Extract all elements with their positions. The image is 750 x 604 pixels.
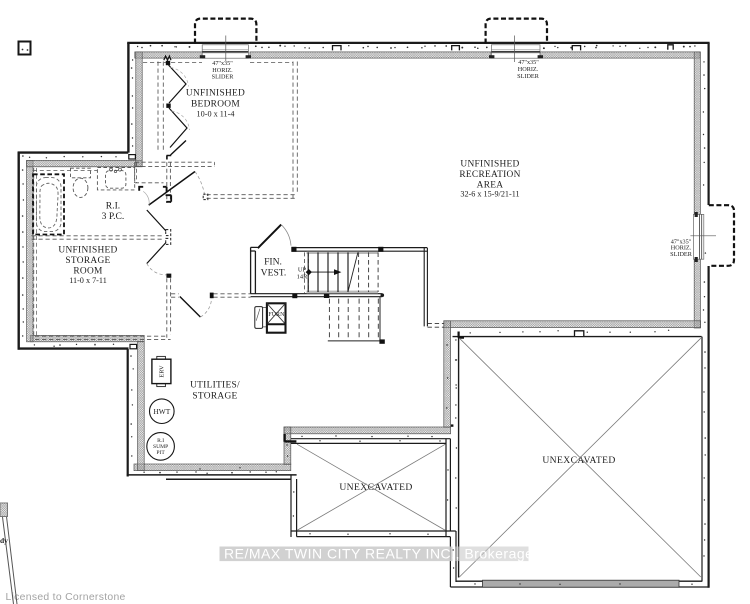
svg-text:HWT: HWT xyxy=(153,407,170,416)
svg-text:47"x35": 47"x35" xyxy=(518,59,539,66)
svg-text:3 P.C.: 3 P.C. xyxy=(102,211,125,222)
svg-text:SLIDER: SLIDER xyxy=(670,251,693,258)
svg-text:R.I.: R.I. xyxy=(106,201,120,212)
svg-text:Licensed to Cornerstone: Licensed to Cornerstone xyxy=(6,592,126,603)
svg-text:11-0 x 7-11: 11-0 x 7-11 xyxy=(69,276,107,285)
svg-text:SLIDER: SLIDER xyxy=(517,73,540,80)
svg-text:UNFINISHED: UNFINISHED xyxy=(460,160,519,170)
svg-text:dy: dy xyxy=(0,536,8,545)
svg-text:10-0 x 11-4: 10-0 x 11-4 xyxy=(197,110,235,119)
svg-text:UNFINISHED: UNFINISHED xyxy=(58,246,117,256)
svg-text:14R: 14R xyxy=(297,274,308,281)
svg-text:UNFINISHED: UNFINISHED xyxy=(186,89,245,99)
svg-text:UNEXCAVATED: UNEXCAVATED xyxy=(339,482,412,493)
svg-text:SLIDER: SLIDER xyxy=(212,74,235,81)
svg-text:UTILITIES/: UTILITIES/ xyxy=(190,381,240,391)
svg-text:ERV: ERV xyxy=(159,365,166,378)
svg-text:PIT: PIT xyxy=(156,450,165,456)
svg-text:FURN: FURN xyxy=(268,312,285,318)
svg-text:47"x35": 47"x35" xyxy=(212,60,233,67)
svg-text:ROOM: ROOM xyxy=(73,267,103,277)
svg-text:STORAGE: STORAGE xyxy=(192,392,237,402)
svg-text:STORAGE: STORAGE xyxy=(65,256,110,266)
svg-text:UP: UP xyxy=(298,267,307,274)
svg-text:VEST.: VEST. xyxy=(261,268,287,279)
svg-text:RECREATION: RECREATION xyxy=(459,170,520,180)
svg-text:R.I: R.I xyxy=(157,438,164,444)
svg-text:BEDROOM: BEDROOM xyxy=(191,100,240,110)
svg-text:32-6 x 15-9/21-11: 32-6 x 15-9/21-11 xyxy=(460,190,519,199)
svg-text:RE/MAX TWIN CITY REALTY INC.,: RE/MAX TWIN CITY REALTY INC., Brokerage xyxy=(224,546,533,562)
svg-text:FIN.: FIN. xyxy=(264,257,282,268)
